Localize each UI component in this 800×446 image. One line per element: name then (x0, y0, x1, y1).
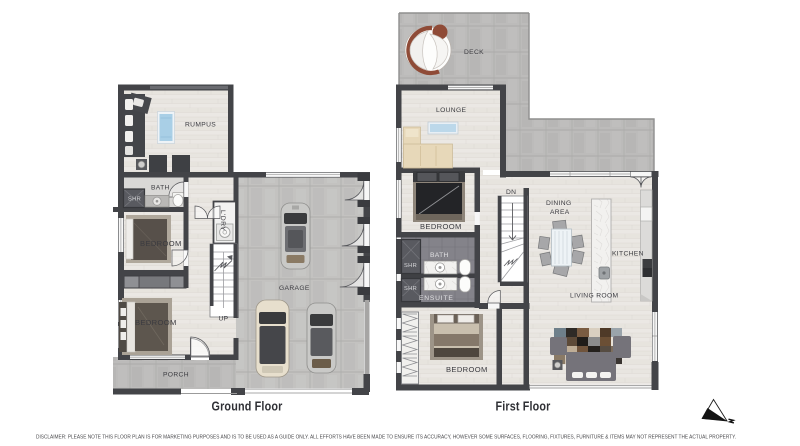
svg-text:SHR: SHR (128, 197, 141, 203)
svg-text:First Floor: First Floor (496, 400, 551, 414)
svg-text:DINING: DINING (546, 200, 572, 207)
svg-text:Ground Floor: Ground Floor (212, 400, 283, 414)
svg-text:RUMPUS: RUMPUS (185, 122, 216, 129)
svg-text:BATH: BATH (151, 185, 170, 192)
svg-text:DN: DN (506, 189, 516, 196)
svg-text:UP: UP (219, 316, 229, 323)
svg-text:BEDROOM: BEDROOM (420, 222, 462, 231)
svg-text:BEDROOM: BEDROOM (140, 239, 182, 248)
svg-text:KITCHEN: KITCHEN (612, 251, 644, 258)
svg-text:ENSUITE: ENSUITE (419, 295, 454, 302)
svg-text:LOUNGE: LOUNGE (436, 107, 467, 114)
svg-text:AREA: AREA (550, 209, 570, 216)
svg-text:DISCLAIMER: PLEASE NOTE THIS F: DISCLAIMER: PLEASE NOTE THIS FLOOR PLAN … (36, 435, 736, 441)
svg-text:PORCH: PORCH (163, 372, 189, 379)
svg-text:DECK: DECK (464, 49, 484, 56)
svg-text:SHR: SHR (404, 286, 417, 292)
svg-text:SHR: SHR (404, 263, 417, 269)
svg-text:BEDROOM: BEDROOM (135, 318, 177, 327)
svg-text:BEDROOM: BEDROOM (446, 365, 488, 374)
svg-text:L'DRY: L'DRY (219, 210, 226, 231)
svg-text:BATH: BATH (430, 252, 449, 259)
svg-text:LIVING ROOM: LIVING ROOM (570, 293, 619, 300)
svg-text:GARAGE: GARAGE (279, 285, 310, 292)
